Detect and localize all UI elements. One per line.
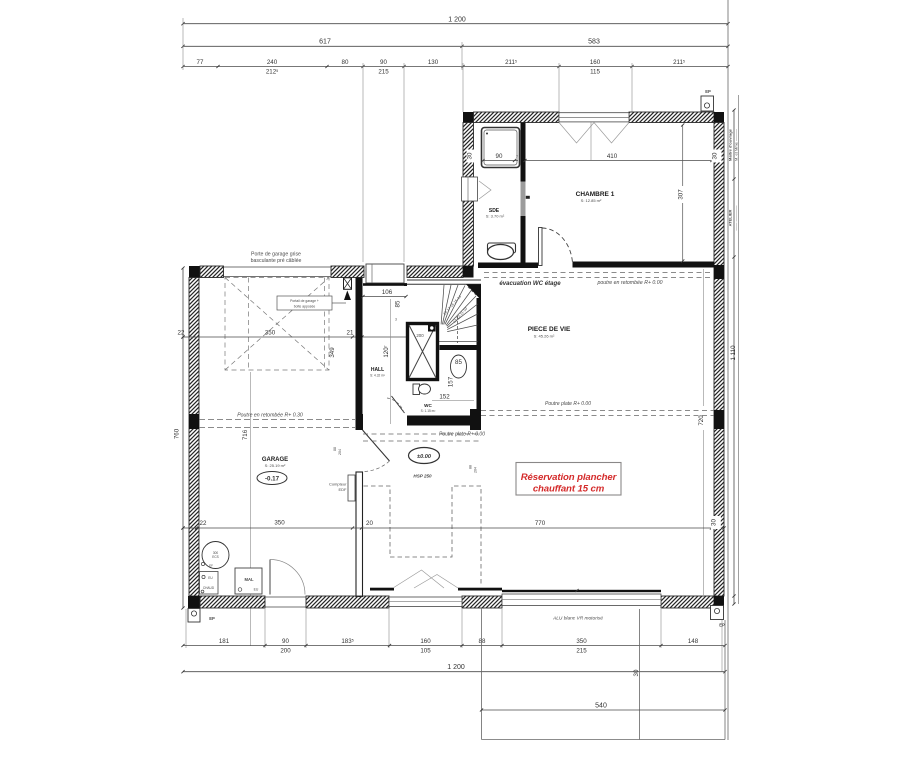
svg-text:PIECE DE VIE: PIECE DE VIE xyxy=(528,326,571,333)
svg-text:204: 204 xyxy=(338,449,342,455)
svg-text:22: 22 xyxy=(200,520,207,527)
svg-text:157: 157 xyxy=(447,376,454,387)
svg-text:720: 720 xyxy=(698,415,705,426)
svg-text:617: 617 xyxy=(319,39,331,46)
svg-text:30: 30 xyxy=(633,669,640,676)
svg-text:S: 45.26 m²: S: 45.26 m² xyxy=(534,334,555,339)
svg-text:350: 350 xyxy=(265,330,276,337)
svg-text:S: 3.70 m²: S: 3.70 m² xyxy=(486,214,505,219)
svg-text:770: 770 xyxy=(535,520,546,527)
svg-text:HALL: HALL xyxy=(371,367,384,373)
svg-text:90: 90 xyxy=(380,59,387,66)
svg-text:30: 30 xyxy=(467,152,474,159)
svg-text:90: 90 xyxy=(496,153,503,160)
svg-text:Poutre plate R+ 0.00: Poutre plate R+ 0.00 xyxy=(439,432,485,438)
svg-text:88: 88 xyxy=(479,638,486,645)
svg-text:Poutre en retombée R+ 0.30: Poutre en retombée R+ 0.30 xyxy=(237,413,303,419)
svg-text:basculante pré câblée: basculante pré câblée xyxy=(251,258,302,264)
svg-text:±0.00: ±0.00 xyxy=(417,454,432,460)
svg-text:152: 152 xyxy=(439,394,450,401)
svg-text:—— ————: —— ———— xyxy=(734,205,739,230)
svg-text:90: 90 xyxy=(282,638,289,645)
svg-text:349: 349 xyxy=(329,347,336,358)
svg-text:évacuation WC étage: évacuation WC étage xyxy=(499,280,561,287)
svg-text:EU: EU xyxy=(208,576,213,580)
svg-text:Portail de garage +: Portail de garage + xyxy=(290,299,319,303)
svg-text:S: 4.32 m²: S: 4.32 m² xyxy=(370,374,385,378)
svg-text:1 200: 1 200 xyxy=(448,17,466,24)
svg-text:200: 200 xyxy=(416,333,424,338)
svg-text:1 110: 1 110 xyxy=(730,345,737,361)
svg-text:chauffant 15 cm: chauffant 15 cm xyxy=(533,484,605,495)
svg-text:181: 181 xyxy=(219,638,230,645)
svg-text:CHAMBRE 1: CHAMBRE 1 xyxy=(576,191,615,198)
svg-text:583: 583 xyxy=(588,39,600,46)
svg-text:Porte de garage grise: Porte de garage grise xyxy=(251,252,301,258)
svg-text:poutre en retombée R+ 0.00: poutre en retombée R+ 0.00 xyxy=(596,280,662,286)
svg-text:85: 85 xyxy=(455,359,462,366)
svg-text:30: 30 xyxy=(712,152,719,159)
svg-text:HSP 250: HSP 250 xyxy=(413,474,432,479)
svg-text:20: 20 xyxy=(366,520,373,527)
svg-text:22: 22 xyxy=(178,330,185,337)
svg-text:160: 160 xyxy=(420,638,431,645)
svg-text:1 200: 1 200 xyxy=(447,664,465,671)
svg-text:EU: EU xyxy=(254,588,259,592)
svg-text:410: 410 xyxy=(607,153,618,160)
svg-text:MAL: MAL xyxy=(244,577,254,582)
svg-text:307: 307 xyxy=(678,189,685,200)
svg-text:88: 88 xyxy=(469,465,473,469)
svg-text:148: 148 xyxy=(688,638,699,645)
svg-text:WC: WC xyxy=(424,403,432,408)
svg-text:760: 760 xyxy=(174,428,181,439)
svg-text:S: 12.85 m²: S: 12.85 m² xyxy=(581,198,602,203)
svg-text:30: 30 xyxy=(711,519,718,526)
svg-text:Poutre plate R+ 0.00: Poutre plate R+ 0.00 xyxy=(545,401,591,407)
svg-text:boîte apposée: boîte apposée xyxy=(294,305,316,309)
svg-text:540: 540 xyxy=(595,703,607,710)
svg-text:105: 105 xyxy=(420,648,431,655)
svg-text:Maître d'ouvrage: Maître d'ouvrage xyxy=(728,128,733,161)
svg-text:ECS: ECS xyxy=(212,555,219,559)
svg-text:M. et Mme ———: M. et Mme ——— xyxy=(734,129,739,161)
svg-text:S: 1.15 m²: S: 1.15 m² xyxy=(421,409,436,413)
svg-text:350: 350 xyxy=(576,638,587,645)
svg-text:S: 25.19 m²: S: 25.19 m² xyxy=(265,463,286,468)
svg-text:350: 350 xyxy=(274,520,285,527)
svg-text:80: 80 xyxy=(342,59,349,66)
svg-text:3: 3 xyxy=(395,318,397,322)
svg-text:ATELIER: ATELIER xyxy=(728,209,733,226)
svg-text:160: 160 xyxy=(590,59,601,66)
svg-text:21: 21 xyxy=(347,330,354,337)
svg-text:CHAUD: CHAUD xyxy=(203,586,215,590)
svg-text:85: 85 xyxy=(395,300,402,307)
svg-text:Compteur: Compteur xyxy=(329,482,347,487)
svg-text:EP: EP xyxy=(705,89,711,94)
svg-text:ALU blanc VR motorisé: ALU blanc VR motorisé xyxy=(552,616,603,622)
svg-text:130: 130 xyxy=(428,59,439,66)
svg-text:215: 215 xyxy=(576,648,587,655)
svg-text:200: 200 xyxy=(280,648,291,655)
svg-text:115: 115 xyxy=(590,69,600,76)
svg-text:240: 240 xyxy=(267,59,278,66)
svg-text:Réservation plancher: Réservation plancher xyxy=(521,472,618,483)
svg-text:88: 88 xyxy=(333,447,337,451)
svg-text:77: 77 xyxy=(197,59,204,66)
svg-text:716: 716 xyxy=(242,429,249,440)
svg-text:EP: EP xyxy=(209,616,215,621)
svg-text:-0.17: -0.17 xyxy=(265,476,280,483)
svg-text:EDF: EDF xyxy=(339,487,348,492)
svg-text:EF: EF xyxy=(209,564,213,568)
svg-text:215: 215 xyxy=(378,69,389,76)
svg-text:204: 204 xyxy=(474,467,478,473)
svg-text:106: 106 xyxy=(382,289,393,296)
